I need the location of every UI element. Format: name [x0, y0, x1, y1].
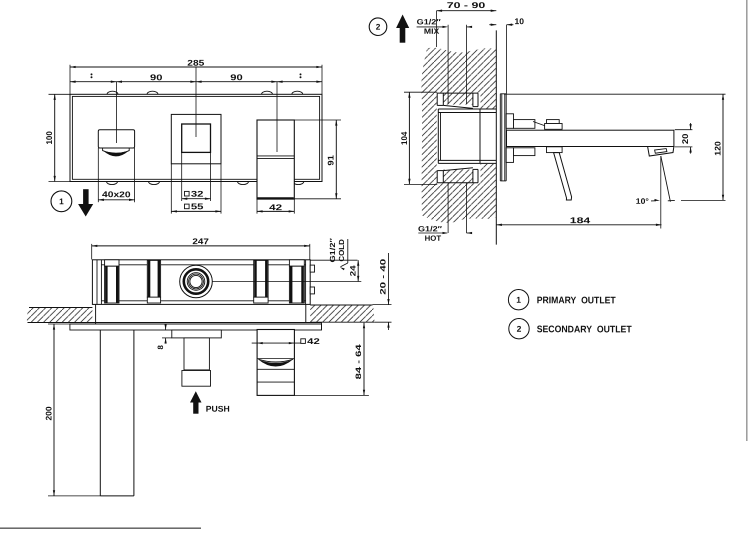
svg-text:120: 120	[712, 141, 722, 156]
svg-text:G1/2″: G1/2″	[417, 17, 441, 26]
svg-text:42: 42	[307, 336, 320, 346]
svg-text:PUSH: PUSH	[206, 404, 230, 414]
svg-text:1: 1	[59, 196, 64, 206]
svg-text:91: 91	[326, 155, 336, 166]
svg-text:104: 104	[399, 131, 409, 145]
svg-text:40x20: 40x20	[102, 189, 131, 199]
svg-text:20 - 40: 20 - 40	[378, 258, 387, 295]
svg-text:90: 90	[150, 72, 163, 82]
svg-text:10°: 10°	[636, 197, 649, 206]
svg-text:184: 184	[570, 215, 591, 225]
svg-text:90: 90	[230, 72, 243, 82]
svg-text:70 - 90: 70 - 90	[447, 0, 486, 10]
svg-text:42: 42	[269, 202, 283, 212]
svg-text:24: 24	[348, 265, 357, 277]
svg-text:247: 247	[192, 236, 209, 246]
svg-text:G1/2″: G1/2″	[328, 237, 337, 262]
svg-text:285: 285	[187, 58, 204, 68]
svg-text:100: 100	[44, 131, 54, 145]
svg-text:2: 2	[376, 22, 381, 32]
svg-text:SECONDARY OUTLET: SECONDARY OUTLET	[537, 324, 632, 335]
svg-text:55: 55	[191, 201, 204, 211]
svg-text:G1/2″: G1/2″	[418, 224, 442, 233]
svg-text:200: 200	[43, 406, 53, 420]
svg-text:1: 1	[516, 295, 521, 305]
svg-text:COLD: COLD	[337, 239, 346, 262]
svg-text:HOT: HOT	[425, 234, 442, 243]
svg-text:84 - 64: 84 - 64	[354, 343, 363, 379]
svg-text:32: 32	[191, 189, 204, 199]
svg-text:20: 20	[680, 133, 690, 144]
svg-text:10: 10	[515, 16, 525, 26]
svg-text:MIX: MIX	[424, 27, 439, 36]
svg-text:2: 2	[517, 324, 522, 334]
svg-text:8: 8	[156, 344, 165, 349]
svg-text:PRIMARY OUTLET: PRIMARY OUTLET	[537, 295, 616, 306]
